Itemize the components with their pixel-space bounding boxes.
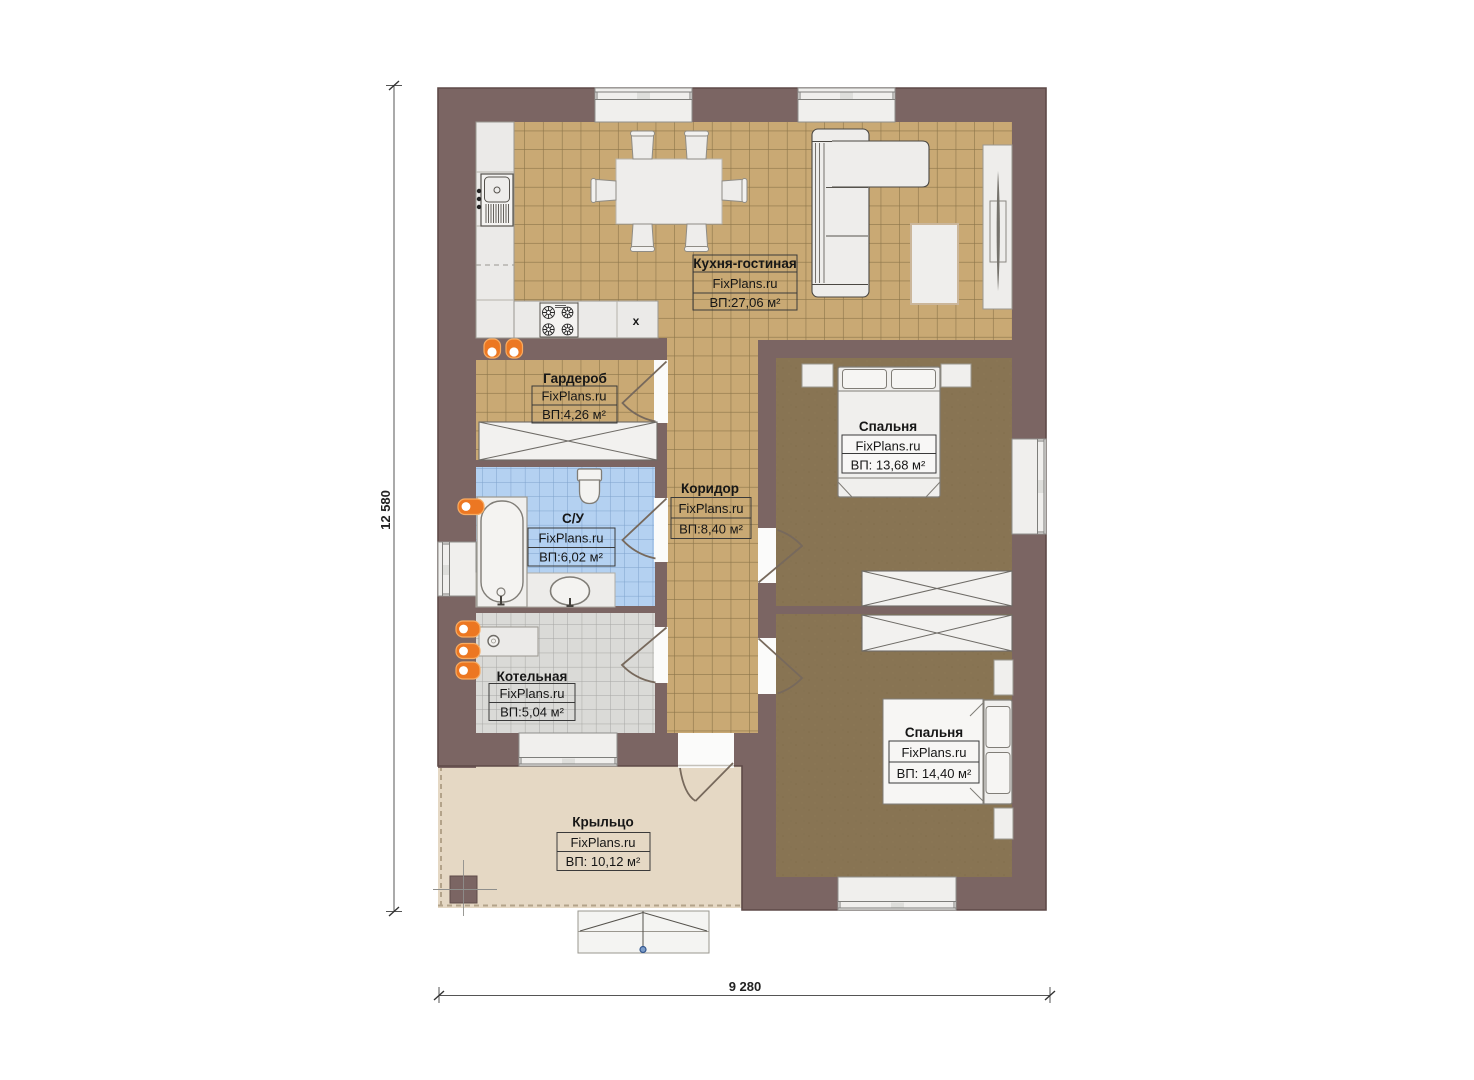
svg-text:FixPlans.ru: FixPlans.ru bbox=[570, 835, 635, 850]
svg-text:Крыльцо: Крыльцо bbox=[572, 815, 633, 830]
svg-text:12 580: 12 580 bbox=[378, 490, 393, 530]
svg-text:Котельная: Котельная bbox=[497, 669, 568, 684]
svg-text:Коридор: Коридор bbox=[681, 481, 739, 496]
svg-text:ВП: 10,12 м²: ВП: 10,12 м² bbox=[566, 854, 641, 869]
svg-text:ВП:8,40 м²: ВП:8,40 м² bbox=[679, 522, 743, 537]
svg-text:ВП:6,02 м²: ВП:6,02 м² bbox=[539, 550, 603, 565]
svg-text:FixPlans.ru: FixPlans.ru bbox=[901, 745, 966, 760]
svg-text:ВП: 14,40 м²: ВП: 14,40 м² bbox=[897, 766, 972, 781]
svg-text:ВП:27,06 м²: ВП:27,06 м² bbox=[709, 295, 781, 310]
svg-text:ВП: 13,68 м²: ВП: 13,68 м² bbox=[851, 458, 926, 473]
svg-text:С/У: С/У bbox=[562, 511, 585, 526]
svg-text:Спальня: Спальня bbox=[905, 725, 963, 740]
svg-text:FixPlans.ru: FixPlans.ru bbox=[712, 276, 777, 291]
svg-text:Кухня-гостиная: Кухня-гостиная bbox=[693, 256, 796, 271]
svg-text:Спальня: Спальня bbox=[859, 419, 917, 434]
svg-text:FixPlans.ru: FixPlans.ru bbox=[855, 439, 920, 454]
svg-text:ВП:5,04 м²: ВП:5,04 м² bbox=[500, 705, 564, 720]
svg-text:FixPlans.ru: FixPlans.ru bbox=[678, 501, 743, 516]
svg-text:x: x bbox=[633, 314, 640, 328]
svg-text:Гардероб: Гардероб bbox=[543, 371, 607, 386]
svg-text:FixPlans.ru: FixPlans.ru bbox=[499, 686, 564, 701]
svg-text:ВП:4,26 м²: ВП:4,26 м² bbox=[542, 407, 606, 422]
svg-text:9 280: 9 280 bbox=[729, 979, 762, 994]
svg-text:FixPlans.ru: FixPlans.ru bbox=[541, 389, 606, 404]
svg-text:FixPlans.ru: FixPlans.ru bbox=[538, 531, 603, 546]
